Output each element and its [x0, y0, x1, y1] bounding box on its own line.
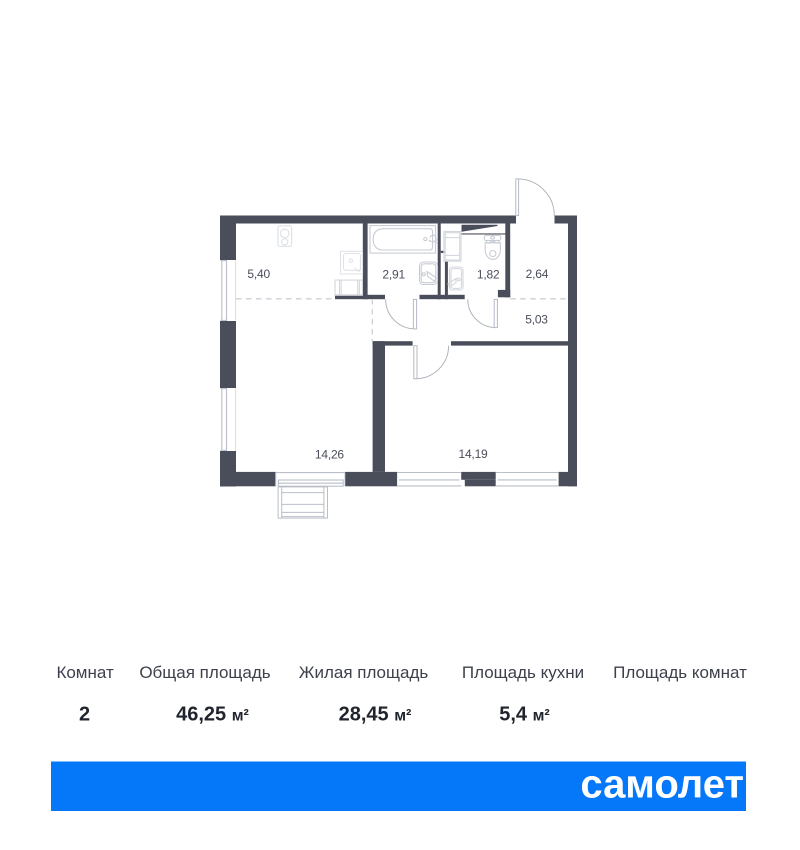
svg-text:5,40: 5,40 [247, 267, 270, 281]
svg-text:14,26: 14,26 [315, 448, 345, 462]
svg-text:2: 2 [79, 704, 90, 726]
svg-text:Жилая площадь: Жилая площадь [299, 663, 429, 682]
svg-text:2,64: 2,64 [526, 267, 549, 281]
svg-text:Общая площадь: Общая площадь [139, 663, 270, 682]
svg-text:1,82: 1,82 [477, 268, 500, 282]
svg-text:Площадь кухни: Площадь кухни [462, 663, 584, 682]
svg-text:2,91: 2,91 [382, 268, 405, 282]
svg-text:Площадь комнат: Площадь комнат [613, 663, 747, 682]
svg-text:28,45 м²: 28,45 м² [339, 704, 412, 726]
svg-text:14,19: 14,19 [458, 447, 488, 461]
svg-text:5,4 м²: 5,4 м² [499, 704, 550, 726]
svg-text:самолет: самолет [580, 763, 744, 807]
svg-text:Комнат: Комнат [56, 663, 114, 682]
svg-text:46,25 м²: 46,25 м² [176, 704, 249, 726]
svg-text:5,03: 5,03 [525, 313, 548, 327]
